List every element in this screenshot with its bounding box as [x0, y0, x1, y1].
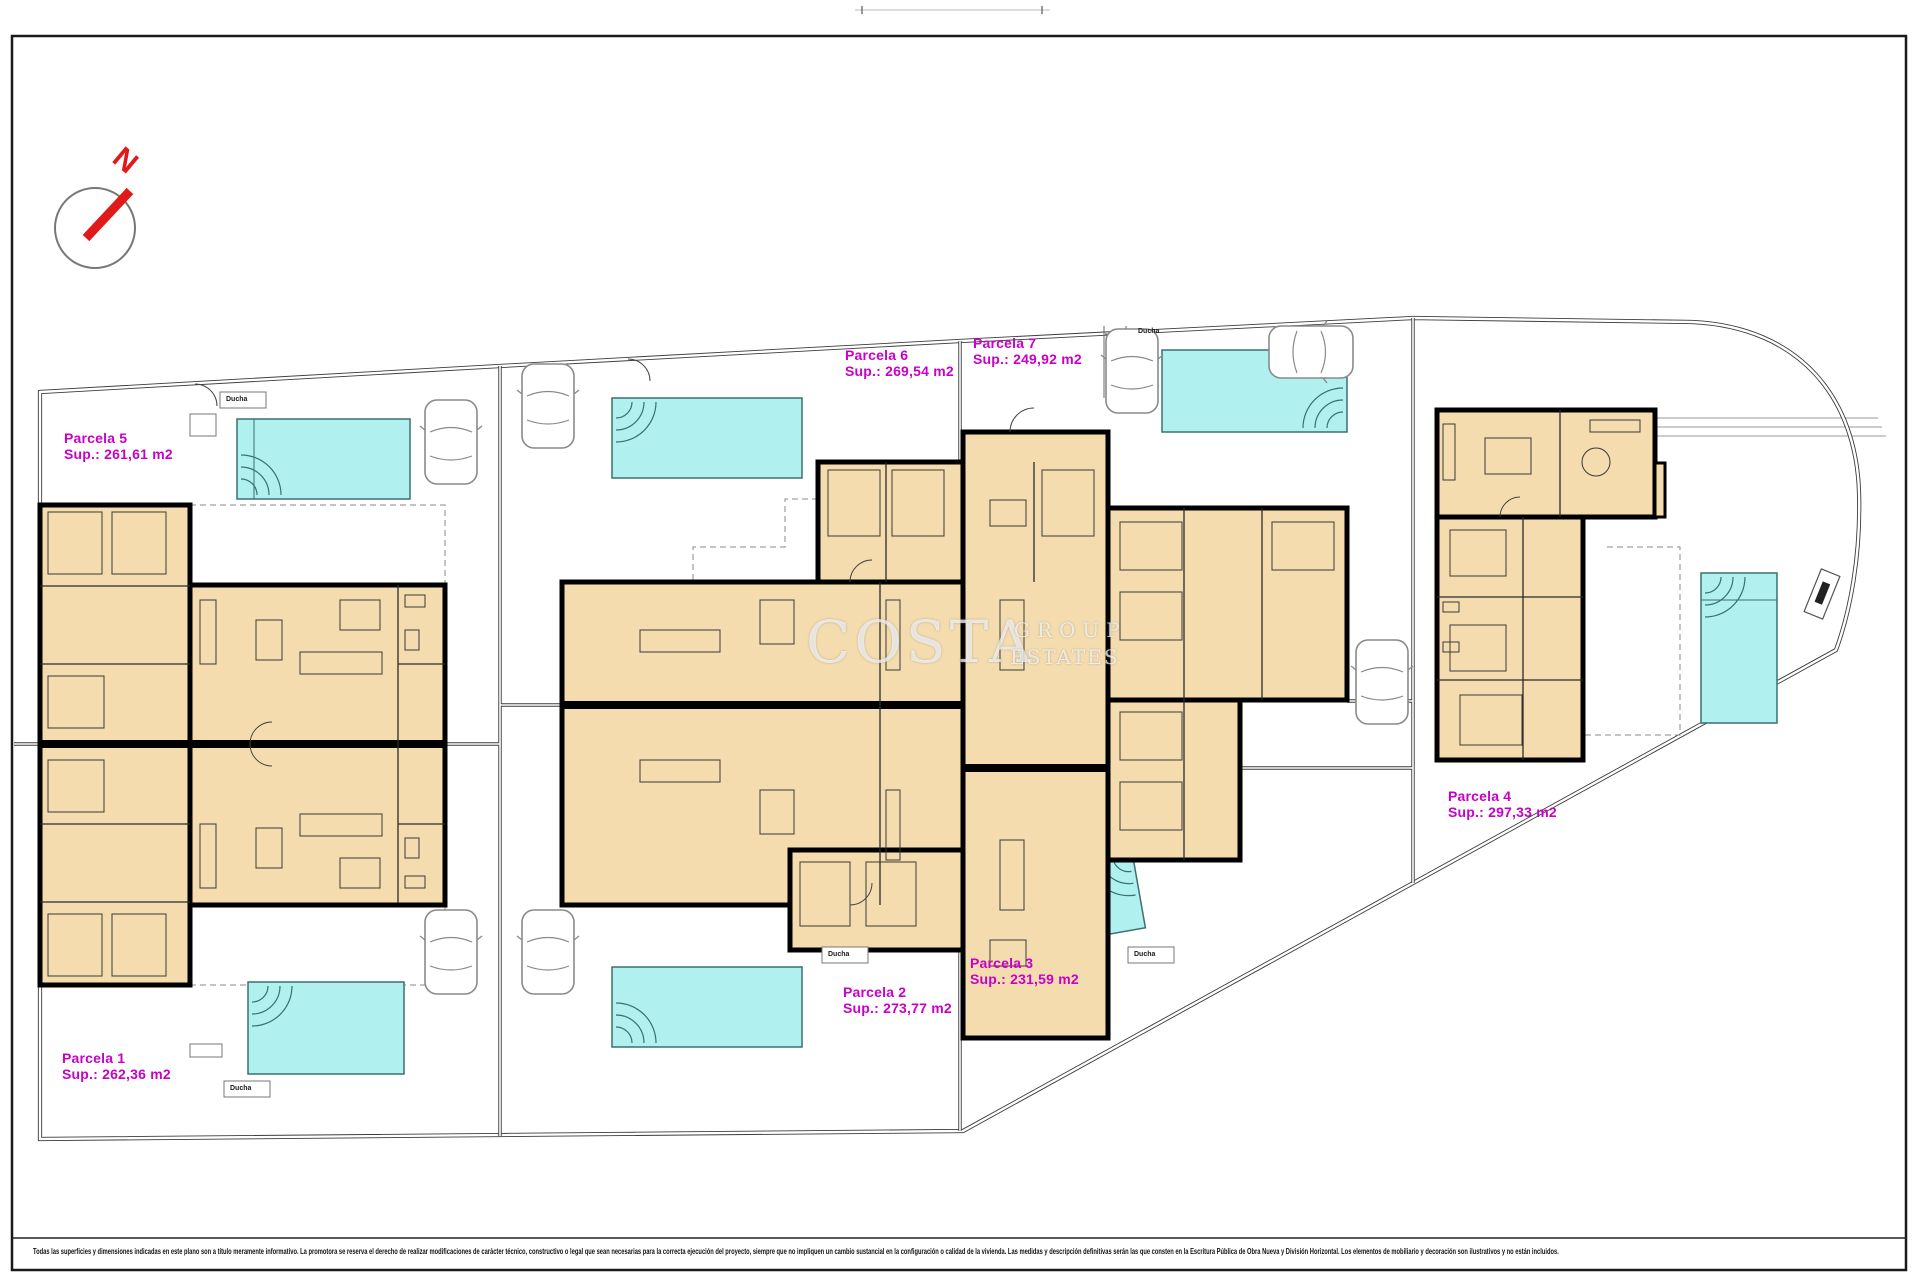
shower-label: Ducha — [1134, 951, 1155, 959]
parcel-area: Sup.: 262,36 m2 — [62, 1066, 171, 1082]
car-icon — [1351, 640, 1413, 724]
shower-label: Ducha — [230, 1085, 251, 1093]
pool-parcela1 — [248, 982, 404, 1074]
parcel-area: Sup.: 231,59 m2 — [970, 971, 1079, 987]
shower-label: Ducha — [1138, 328, 1159, 336]
parcel-name: Parcela 2 — [843, 984, 952, 1000]
parcel-area: Sup.: 249,92 m2 — [973, 351, 1082, 367]
parcel-area: Sup.: 261,61 m2 — [64, 446, 173, 462]
pool-parcela5 — [237, 419, 410, 499]
shower-label: Ducha — [226, 396, 247, 404]
car-icon — [1269, 321, 1353, 383]
disclaimer-text: Todas las superficies y dimensiones indi… — [33, 1247, 1559, 1256]
car-icon — [420, 400, 482, 484]
parcel-label-2: Parcela 2 Sup.: 273,77 m2 — [843, 984, 952, 1016]
parcel-label-5: Parcela 5 Sup.: 261,61 m2 — [64, 430, 173, 462]
parcel-name: Parcela 4 — [1448, 788, 1557, 804]
car-icon — [420, 910, 482, 994]
pool-parcela2 — [612, 967, 802, 1047]
parcel-label-6: Parcela 6 Sup.: 269,54 m2 — [845, 347, 954, 379]
pool-parcela4 — [1701, 573, 1777, 723]
car-icon — [517, 910, 579, 994]
parcel-label-3: Parcela 3 Sup.: 231,59 m2 — [970, 955, 1079, 987]
shower-label: Ducha — [828, 951, 849, 959]
parcel-name: Parcela 6 — [845, 347, 954, 363]
car-icon — [517, 364, 579, 448]
parcel-name: Parcela 5 — [64, 430, 173, 446]
parcel-name: Parcela 7 — [973, 335, 1082, 351]
parcel-area: Sup.: 269,54 m2 — [845, 363, 954, 379]
parcel-label-4: Parcela 4 Sup.: 297,33 m2 — [1448, 788, 1557, 820]
site-plan-drawing — [0, 0, 1920, 1280]
site-plan-page: N COSTA GROUP ESTATES Parcela 1 Sup.: 26… — [0, 0, 1920, 1280]
parcel-area: Sup.: 297,33 m2 — [1448, 804, 1557, 820]
parcel-name: Parcela 3 — [970, 955, 1079, 971]
north-arrow-icon — [55, 188, 135, 268]
parcel-area: Sup.: 273,77 m2 — [843, 1000, 952, 1016]
parcel-name: Parcela 1 — [62, 1050, 171, 1066]
parcel-label-7: Parcela 7 Sup.: 249,92 m2 — [973, 335, 1082, 367]
parcel-label-1: Parcela 1 Sup.: 262,36 m2 — [62, 1050, 171, 1082]
car-icon — [1101, 329, 1163, 413]
pool-parcela6 — [612, 398, 802, 478]
